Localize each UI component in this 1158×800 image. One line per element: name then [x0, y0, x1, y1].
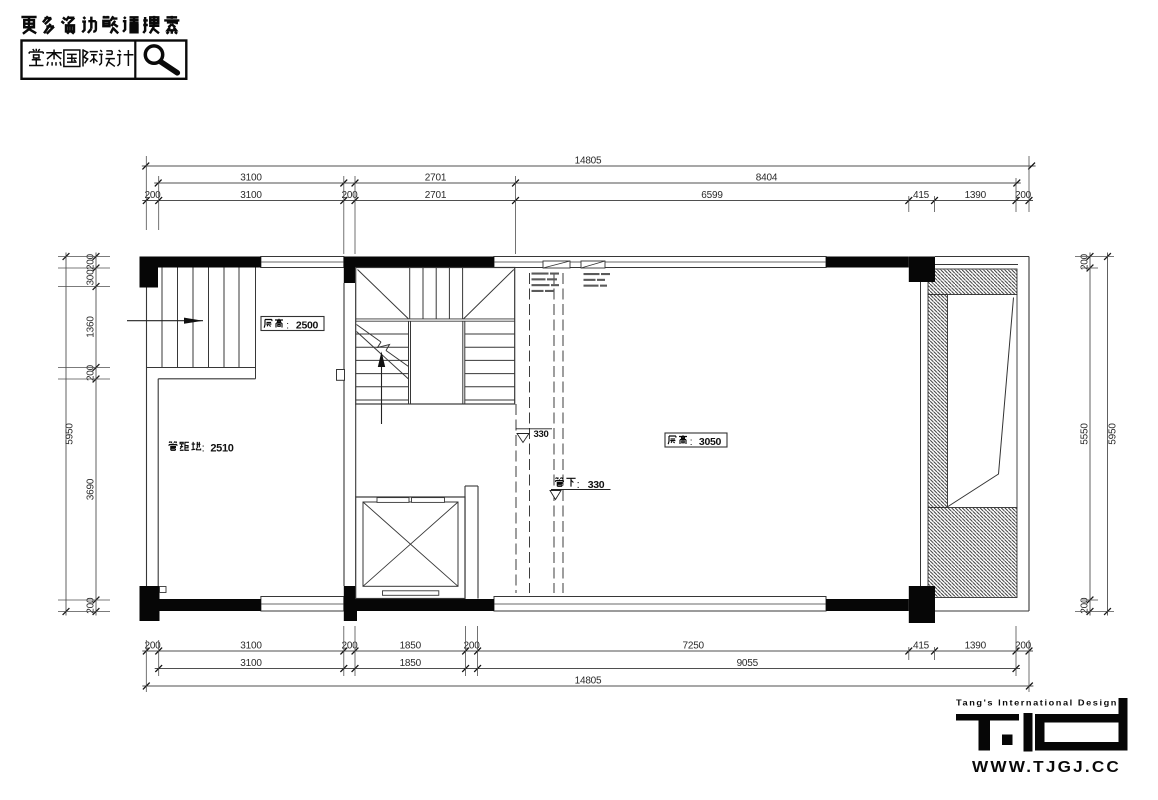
svg-text:1390: 1390 — [965, 190, 987, 201]
svg-text::: : — [286, 321, 289, 332]
svg-text:WWW.TJGJ.CC: WWW.TJGJ.CC — [972, 759, 1121, 776]
svg-text:8404: 8404 — [756, 172, 778, 183]
svg-text:2500: 2500 — [296, 320, 319, 332]
svg-text:5950: 5950 — [65, 423, 76, 445]
svg-text:3100: 3100 — [240, 658, 262, 669]
svg-text:3690: 3690 — [85, 478, 96, 500]
svg-text:330: 330 — [534, 429, 549, 440]
svg-text:7250: 7250 — [682, 640, 704, 651]
svg-text:200: 200 — [85, 364, 96, 381]
svg-text:9055: 9055 — [737, 658, 759, 669]
svg-text:1390: 1390 — [965, 640, 987, 651]
svg-text:3100: 3100 — [240, 190, 262, 201]
svg-text:1360: 1360 — [85, 316, 96, 338]
svg-text:5550: 5550 — [1079, 423, 1090, 445]
svg-text:6599: 6599 — [701, 190, 723, 201]
svg-text:Tang's International Design: Tang's International Design — [956, 699, 1118, 708]
svg-text::: : — [202, 443, 205, 455]
svg-text:14805: 14805 — [575, 155, 602, 166]
svg-text::: : — [690, 437, 693, 448]
svg-text:14805: 14805 — [575, 675, 602, 686]
svg-text:2701: 2701 — [425, 172, 447, 183]
svg-text:5950: 5950 — [1108, 423, 1119, 445]
svg-text:1850: 1850 — [400, 658, 422, 669]
svg-text:415: 415 — [913, 190, 930, 201]
svg-text:3100: 3100 — [240, 172, 262, 183]
svg-text:3100: 3100 — [240, 640, 262, 651]
svg-text:1850: 1850 — [400, 640, 422, 651]
svg-text:415: 415 — [913, 640, 930, 651]
svg-text:200: 200 — [1079, 253, 1090, 270]
svg-text:300: 300 — [85, 269, 96, 286]
svg-text:2701: 2701 — [425, 190, 447, 201]
svg-text:2510: 2510 — [210, 443, 233, 455]
svg-text:200: 200 — [85, 253, 96, 270]
svg-text:3050: 3050 — [699, 436, 722, 448]
